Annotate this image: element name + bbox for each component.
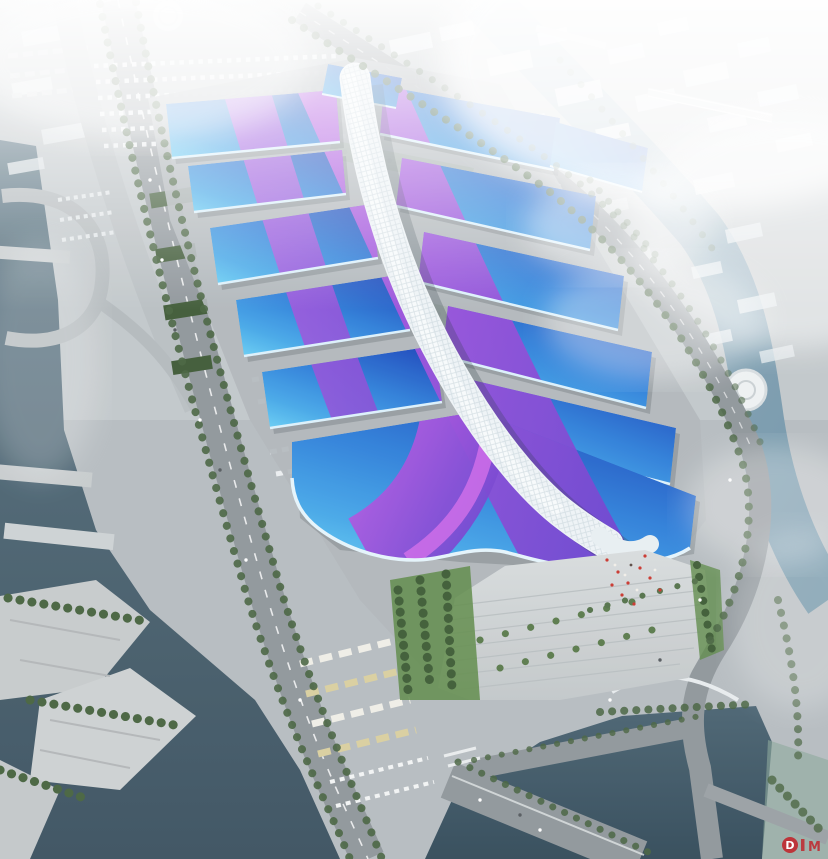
aerial-rendering: D M <box>0 0 828 859</box>
watermark-tail: M <box>808 840 821 855</box>
haze-layer <box>0 0 828 859</box>
watermark-mark: D <box>785 839 794 852</box>
rendering-canvas: D M <box>0 0 828 859</box>
